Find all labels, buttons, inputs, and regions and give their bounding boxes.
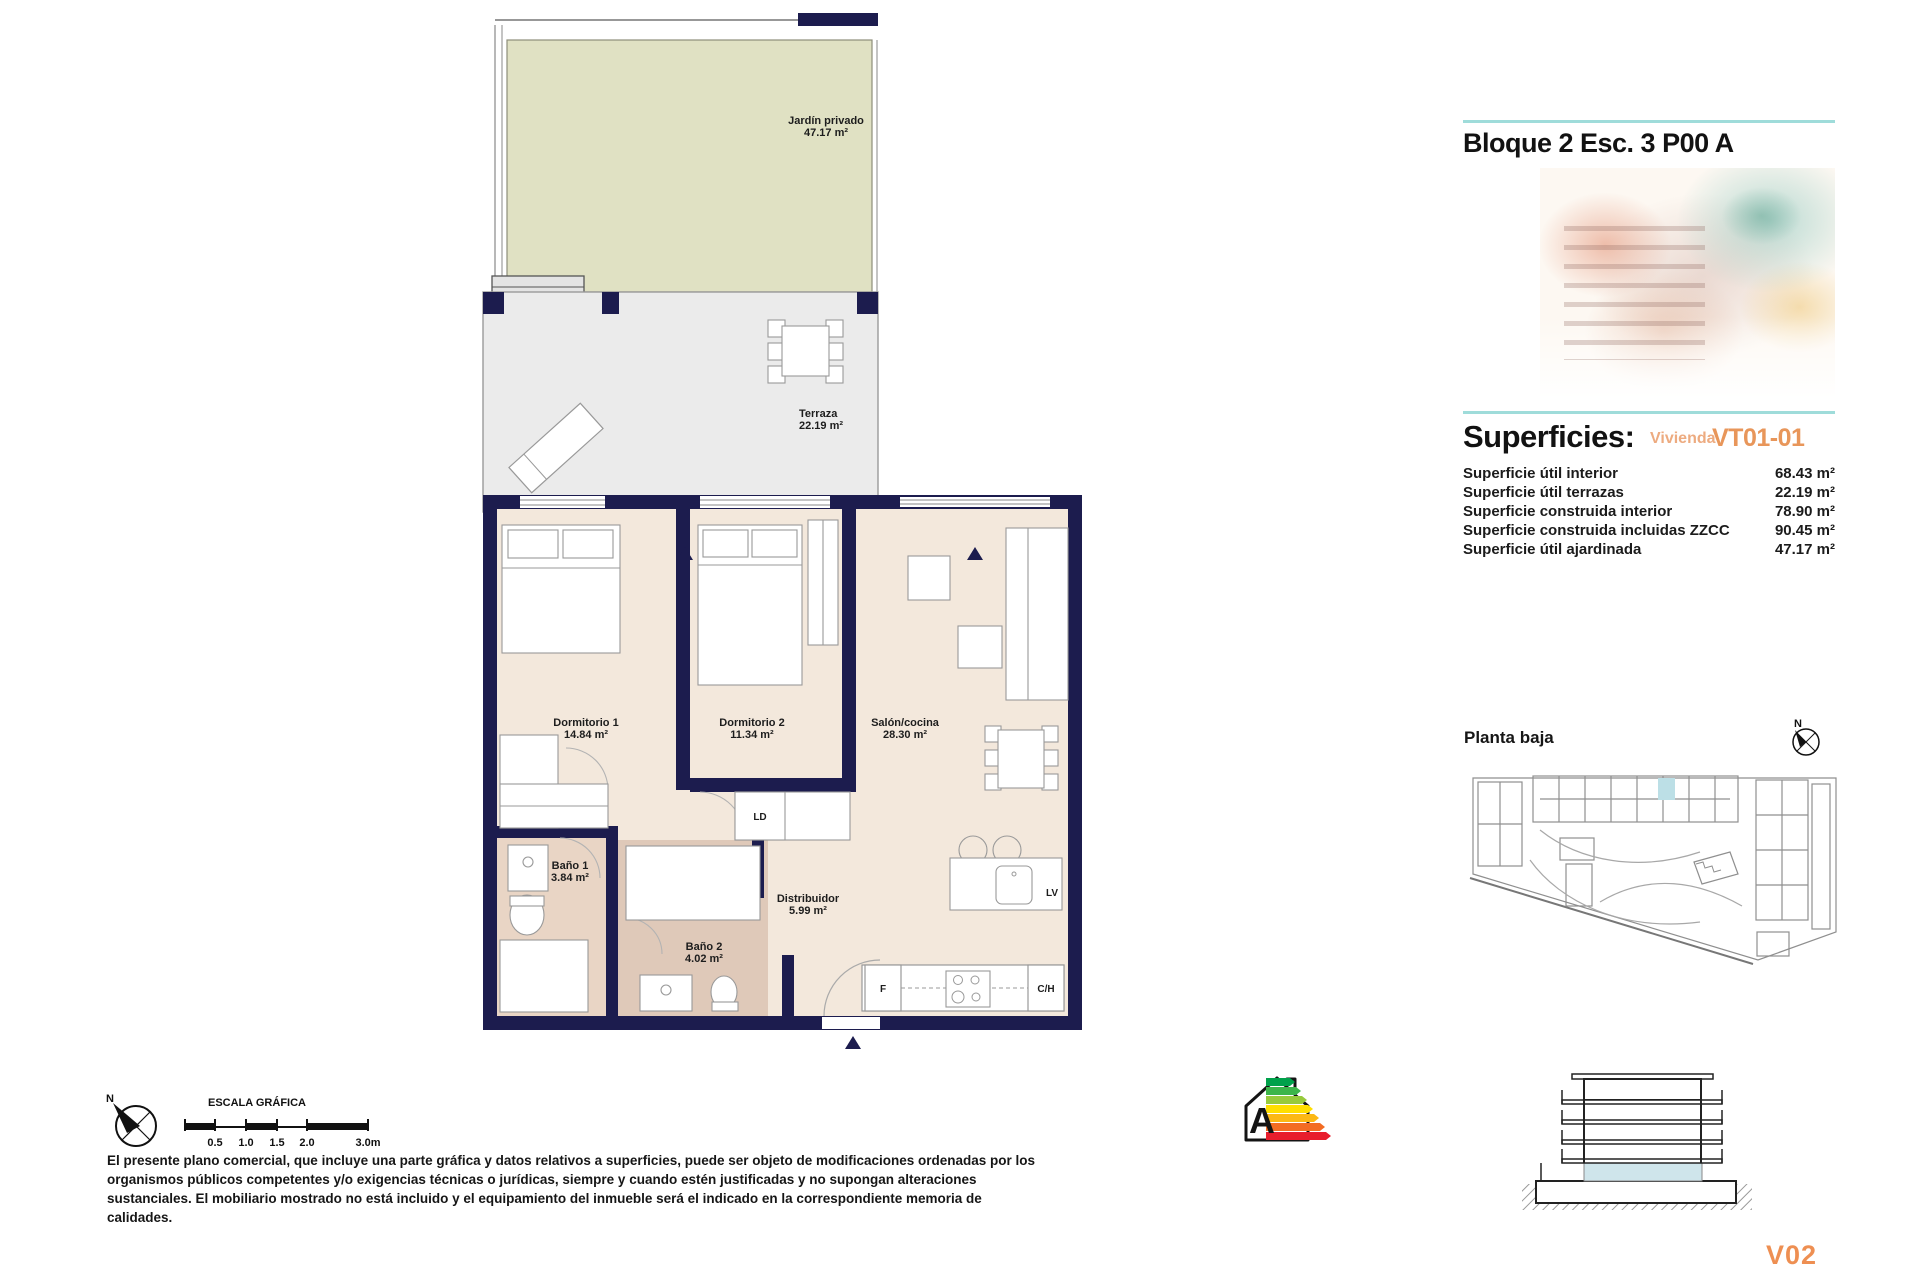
window-openings <box>520 496 1050 508</box>
ch-label: C/H <box>1037 984 1054 995</box>
terrace-label: Terraza <box>799 408 838 420</box>
terrace-wall-pier <box>483 292 504 314</box>
scale-bar-title: ESCALA GRÁFICA <box>208 1096 306 1109</box>
scale-tick: 1.0 <box>238 1137 253 1149</box>
superficies-row: Superficie construida incluidas ZZCC 90.… <box>1463 521 1835 540</box>
superficies-heading: Superficies: <box>1463 419 1634 455</box>
energy-rating-icon: A <box>1246 1078 1331 1141</box>
terrace-dining-set <box>768 320 843 383</box>
section-ground-floor-highlight <box>1584 1163 1702 1181</box>
hall-label: Distribuidor <box>777 893 840 905</box>
building-photo <box>1540 168 1835 408</box>
site-north-label: N <box>1794 718 1802 730</box>
wall-dorm2-salon <box>842 509 856 790</box>
laundry-closet: LD <box>735 792 850 840</box>
superficies-row-value: 78.90 m² <box>1775 502 1835 521</box>
vivienda-code: VT01-01 <box>1712 424 1804 453</box>
garden-label: Jardín privado <box>788 115 864 127</box>
scale-tick: 0.5 <box>207 1137 222 1149</box>
hall-area-label: 5.99 m² <box>789 905 827 917</box>
energy-rating-letter: A <box>1249 1100 1275 1141</box>
entrance-marker-triangle <box>845 1036 861 1049</box>
superficies-row: Superficie útil ajardinada 47.17 m² <box>1463 540 1835 559</box>
wall-bath1-hall <box>606 838 618 1016</box>
site-plan-north-compass: N <box>1793 718 1819 755</box>
garden-area <box>507 40 872 292</box>
scale-tick: 1.5 <box>269 1137 284 1149</box>
page-title: Bloque 2 Esc. 3 P00 A <box>1463 128 1734 159</box>
superficies-row-label: Superficie útil interior <box>1463 464 1618 483</box>
wall-entry-stub <box>782 955 794 1016</box>
garden-area-label: 47.17 m² <box>804 127 848 139</box>
superficies-row-value: 22.19 m² <box>1775 483 1835 502</box>
bath1-area-label: 3.84 m² <box>551 872 589 884</box>
bath1-label: Baño 1 <box>552 860 589 872</box>
kitchen-counter: F C/H <box>862 965 1064 1011</box>
building-photo-palm <box>1717 187 1806 283</box>
wall-closet-top <box>690 778 856 792</box>
superficies-row-label: Superficie construida interior <box>1463 502 1672 521</box>
bath2-label: Baño 2 <box>686 941 723 953</box>
salon-area-label: 28.30 m² <box>883 729 927 741</box>
divider-rule-top <box>1463 120 1835 123</box>
superficies-row-label: Superficie construida incluidas ZZCC <box>1463 521 1730 540</box>
superficies-row-value: 68.43 m² <box>1775 464 1835 483</box>
plan-sheet: Jardín privado 47.17 m² Terraza 22.19 m² <box>0 0 1920 1280</box>
superficies-row-label: Superficie útil terrazas <box>1463 483 1624 502</box>
boundary-wall-segment <box>798 13 878 26</box>
divider-rule-superficies <box>1463 411 1835 414</box>
terrace-wall-pier <box>602 292 619 314</box>
dorm1-label: Dormitorio 1 <box>553 717 618 729</box>
superficies-row: Superficie útil interior 68.43 m² <box>1463 464 1835 483</box>
terrace-area-label: 22.19 m² <box>799 420 843 432</box>
superficies-row: Superficie construida interior 78.90 m² <box>1463 502 1835 521</box>
superficies-row-label: Superficie útil ajardinada <box>1463 540 1641 559</box>
ld-label: LD <box>753 812 766 823</box>
site-plan-unit-highlight <box>1658 778 1675 800</box>
superficies-row-value: 90.45 m² <box>1775 521 1835 540</box>
superficies-row: Superficie útil terrazas 22.19 m² <box>1463 483 1835 502</box>
site-plan-title: Planta baja <box>1464 728 1554 748</box>
building-section <box>1522 1074 1752 1210</box>
lv-label: LV <box>1046 888 1058 899</box>
building-photo-facade <box>1564 226 1706 360</box>
vivienda-label: Vivienda <box>1650 430 1716 448</box>
scale-tick: 2.0 <box>299 1137 314 1149</box>
scale-bar: ESCALA GRÁFICA 0.5 1.0 1.5 2.0 3.0m <box>185 1096 381 1149</box>
superficies-row-value: 47.17 m² <box>1775 540 1835 559</box>
superficies-table: Superficie útil interior 68.43 m² Superf… <box>1463 464 1835 559</box>
north-label: N <box>106 1093 114 1105</box>
dorm1-area-label: 14.84 m² <box>564 729 608 741</box>
north-compass: N <box>106 1093 156 1146</box>
fridge-label: F <box>880 984 886 995</box>
salon-label: Salón/cocina <box>871 717 940 729</box>
version-code: V02 <box>1766 1240 1817 1271</box>
dorm2-area-label: 11.34 m² <box>730 729 774 741</box>
terrace-wall-pier <box>857 292 878 314</box>
site-plan-sketch <box>1470 776 1836 964</box>
energy-rating-bars <box>1266 1078 1331 1140</box>
disclaimer-text: El presente plano comercial, que incluye… <box>107 1152 1045 1228</box>
dorm2-label: Dormitorio 2 <box>719 717 784 729</box>
scale-tick: 3.0m <box>355 1137 380 1149</box>
entrance-opening <box>822 1017 880 1029</box>
bath2-area-label: 4.02 m² <box>685 953 723 965</box>
